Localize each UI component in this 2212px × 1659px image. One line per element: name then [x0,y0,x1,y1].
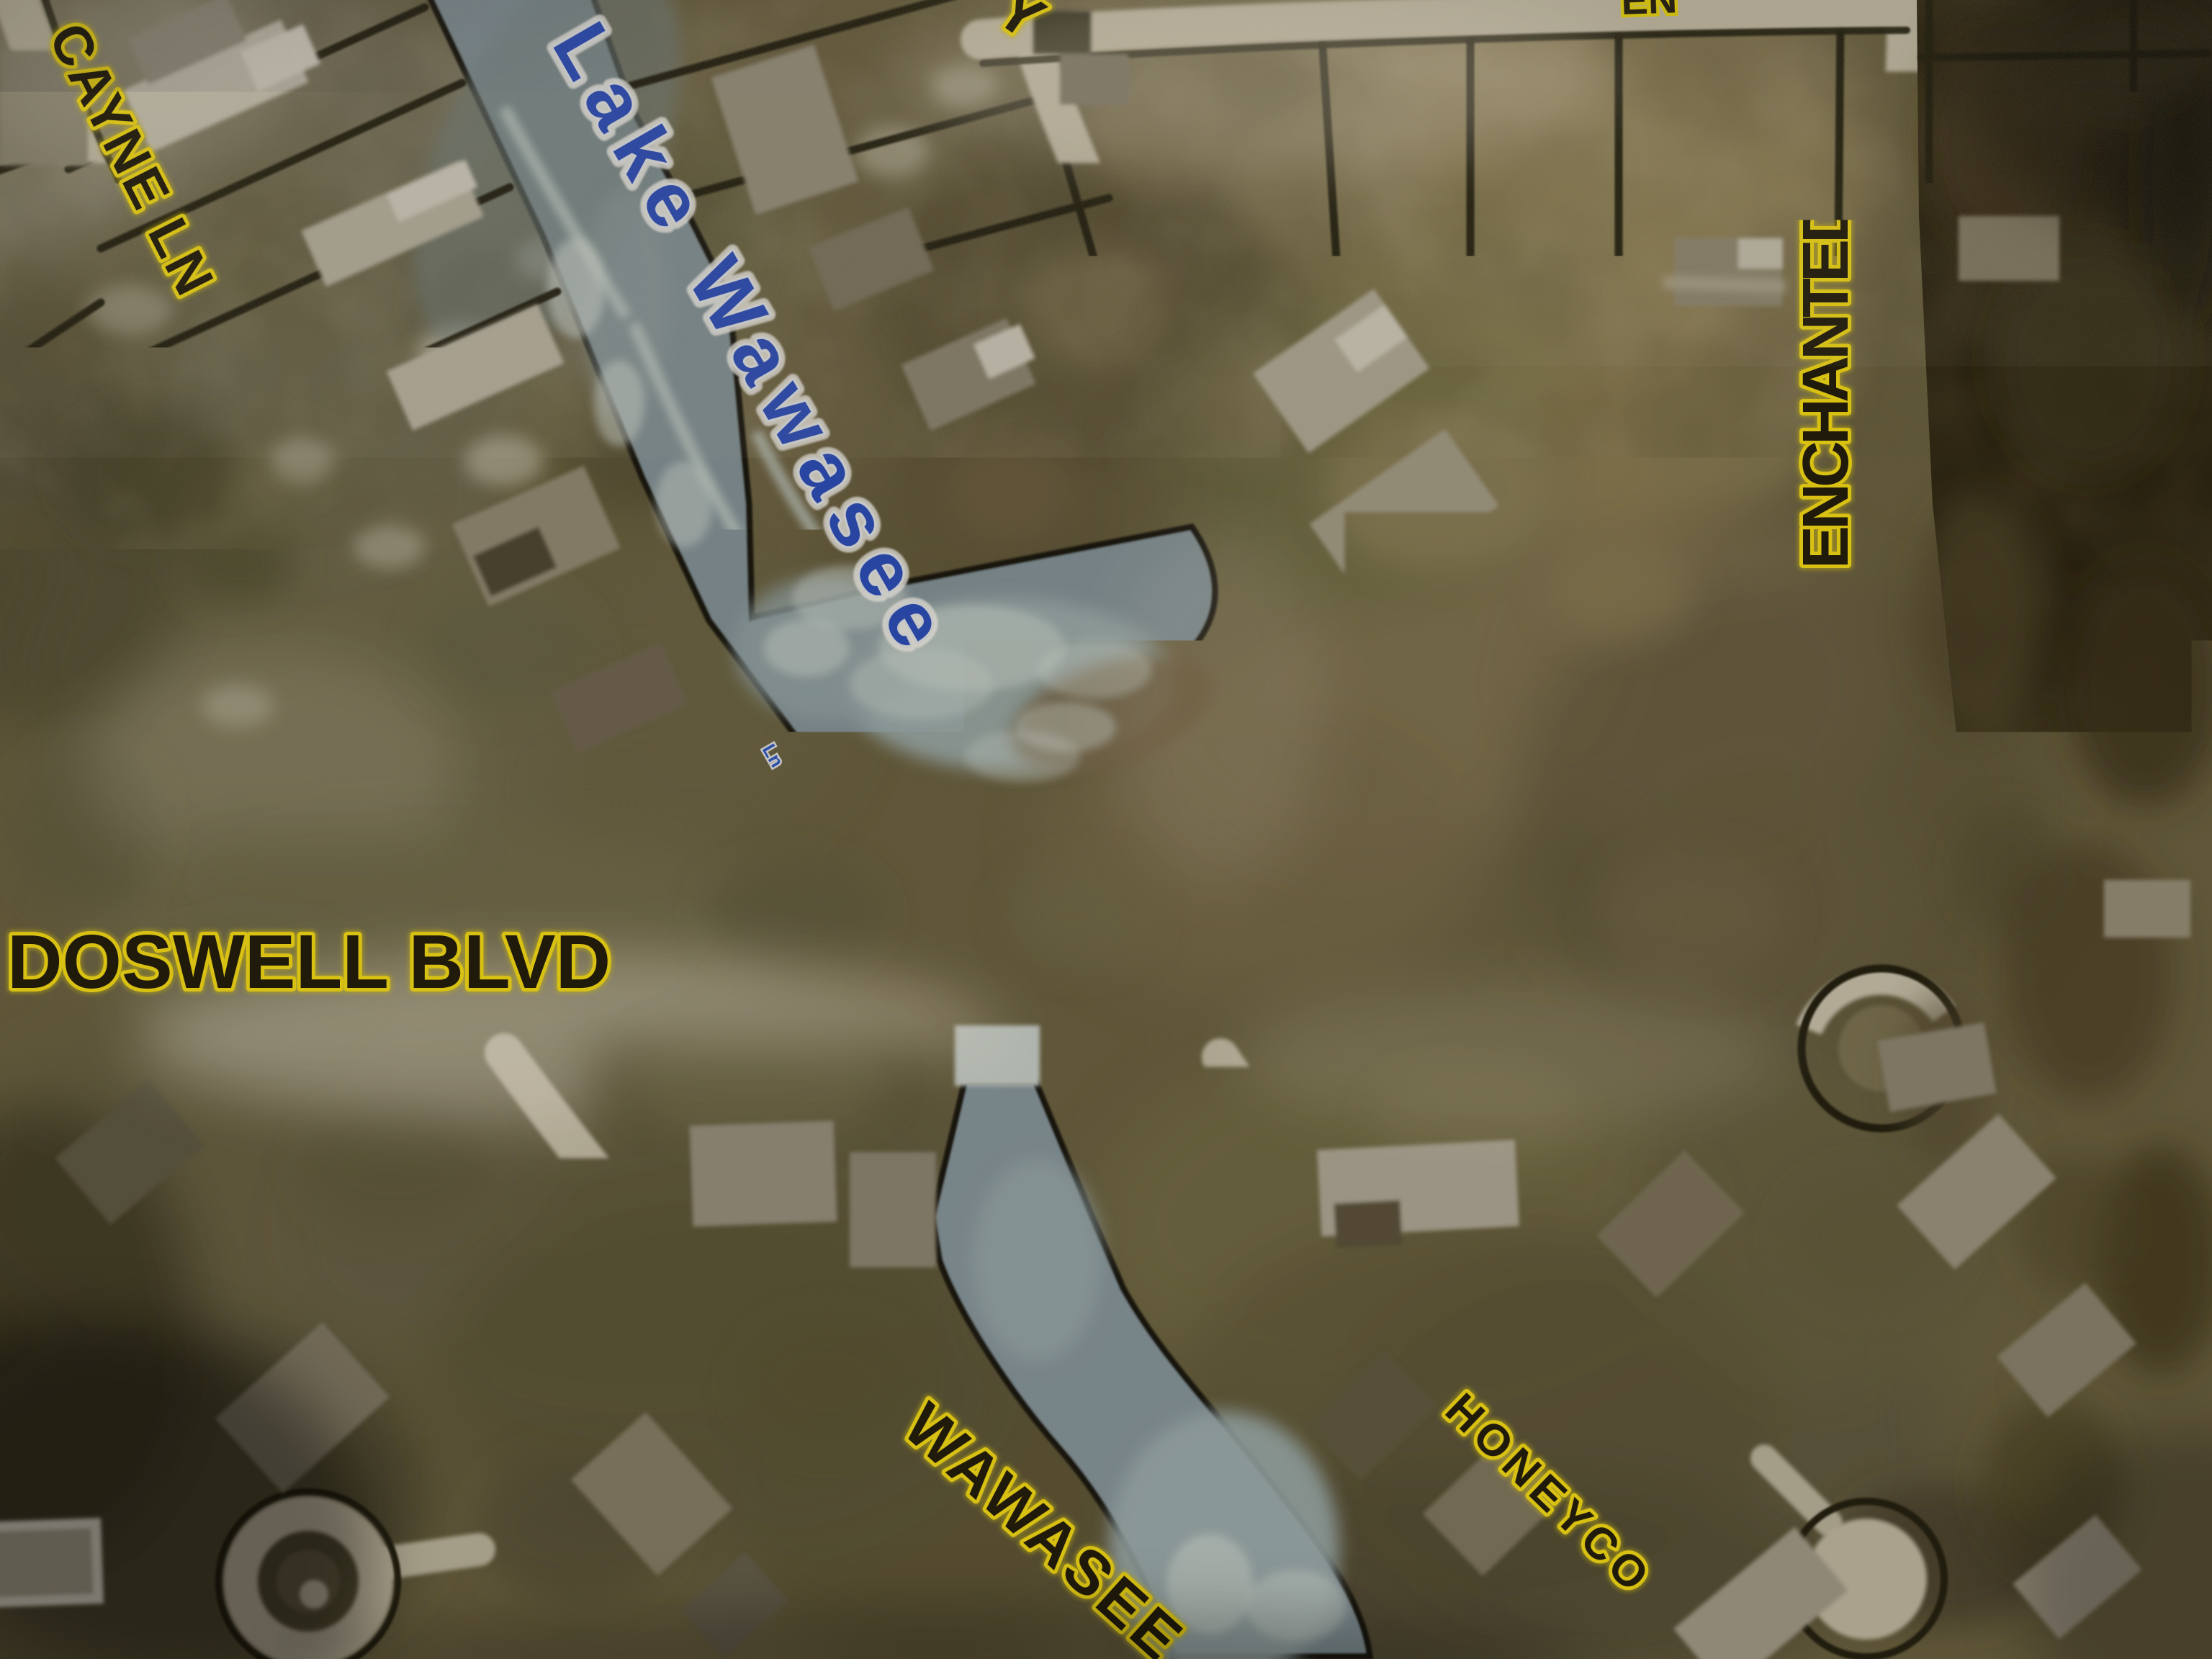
svg-text:IRMLS: IRMLS [2136,1633,2205,1658]
